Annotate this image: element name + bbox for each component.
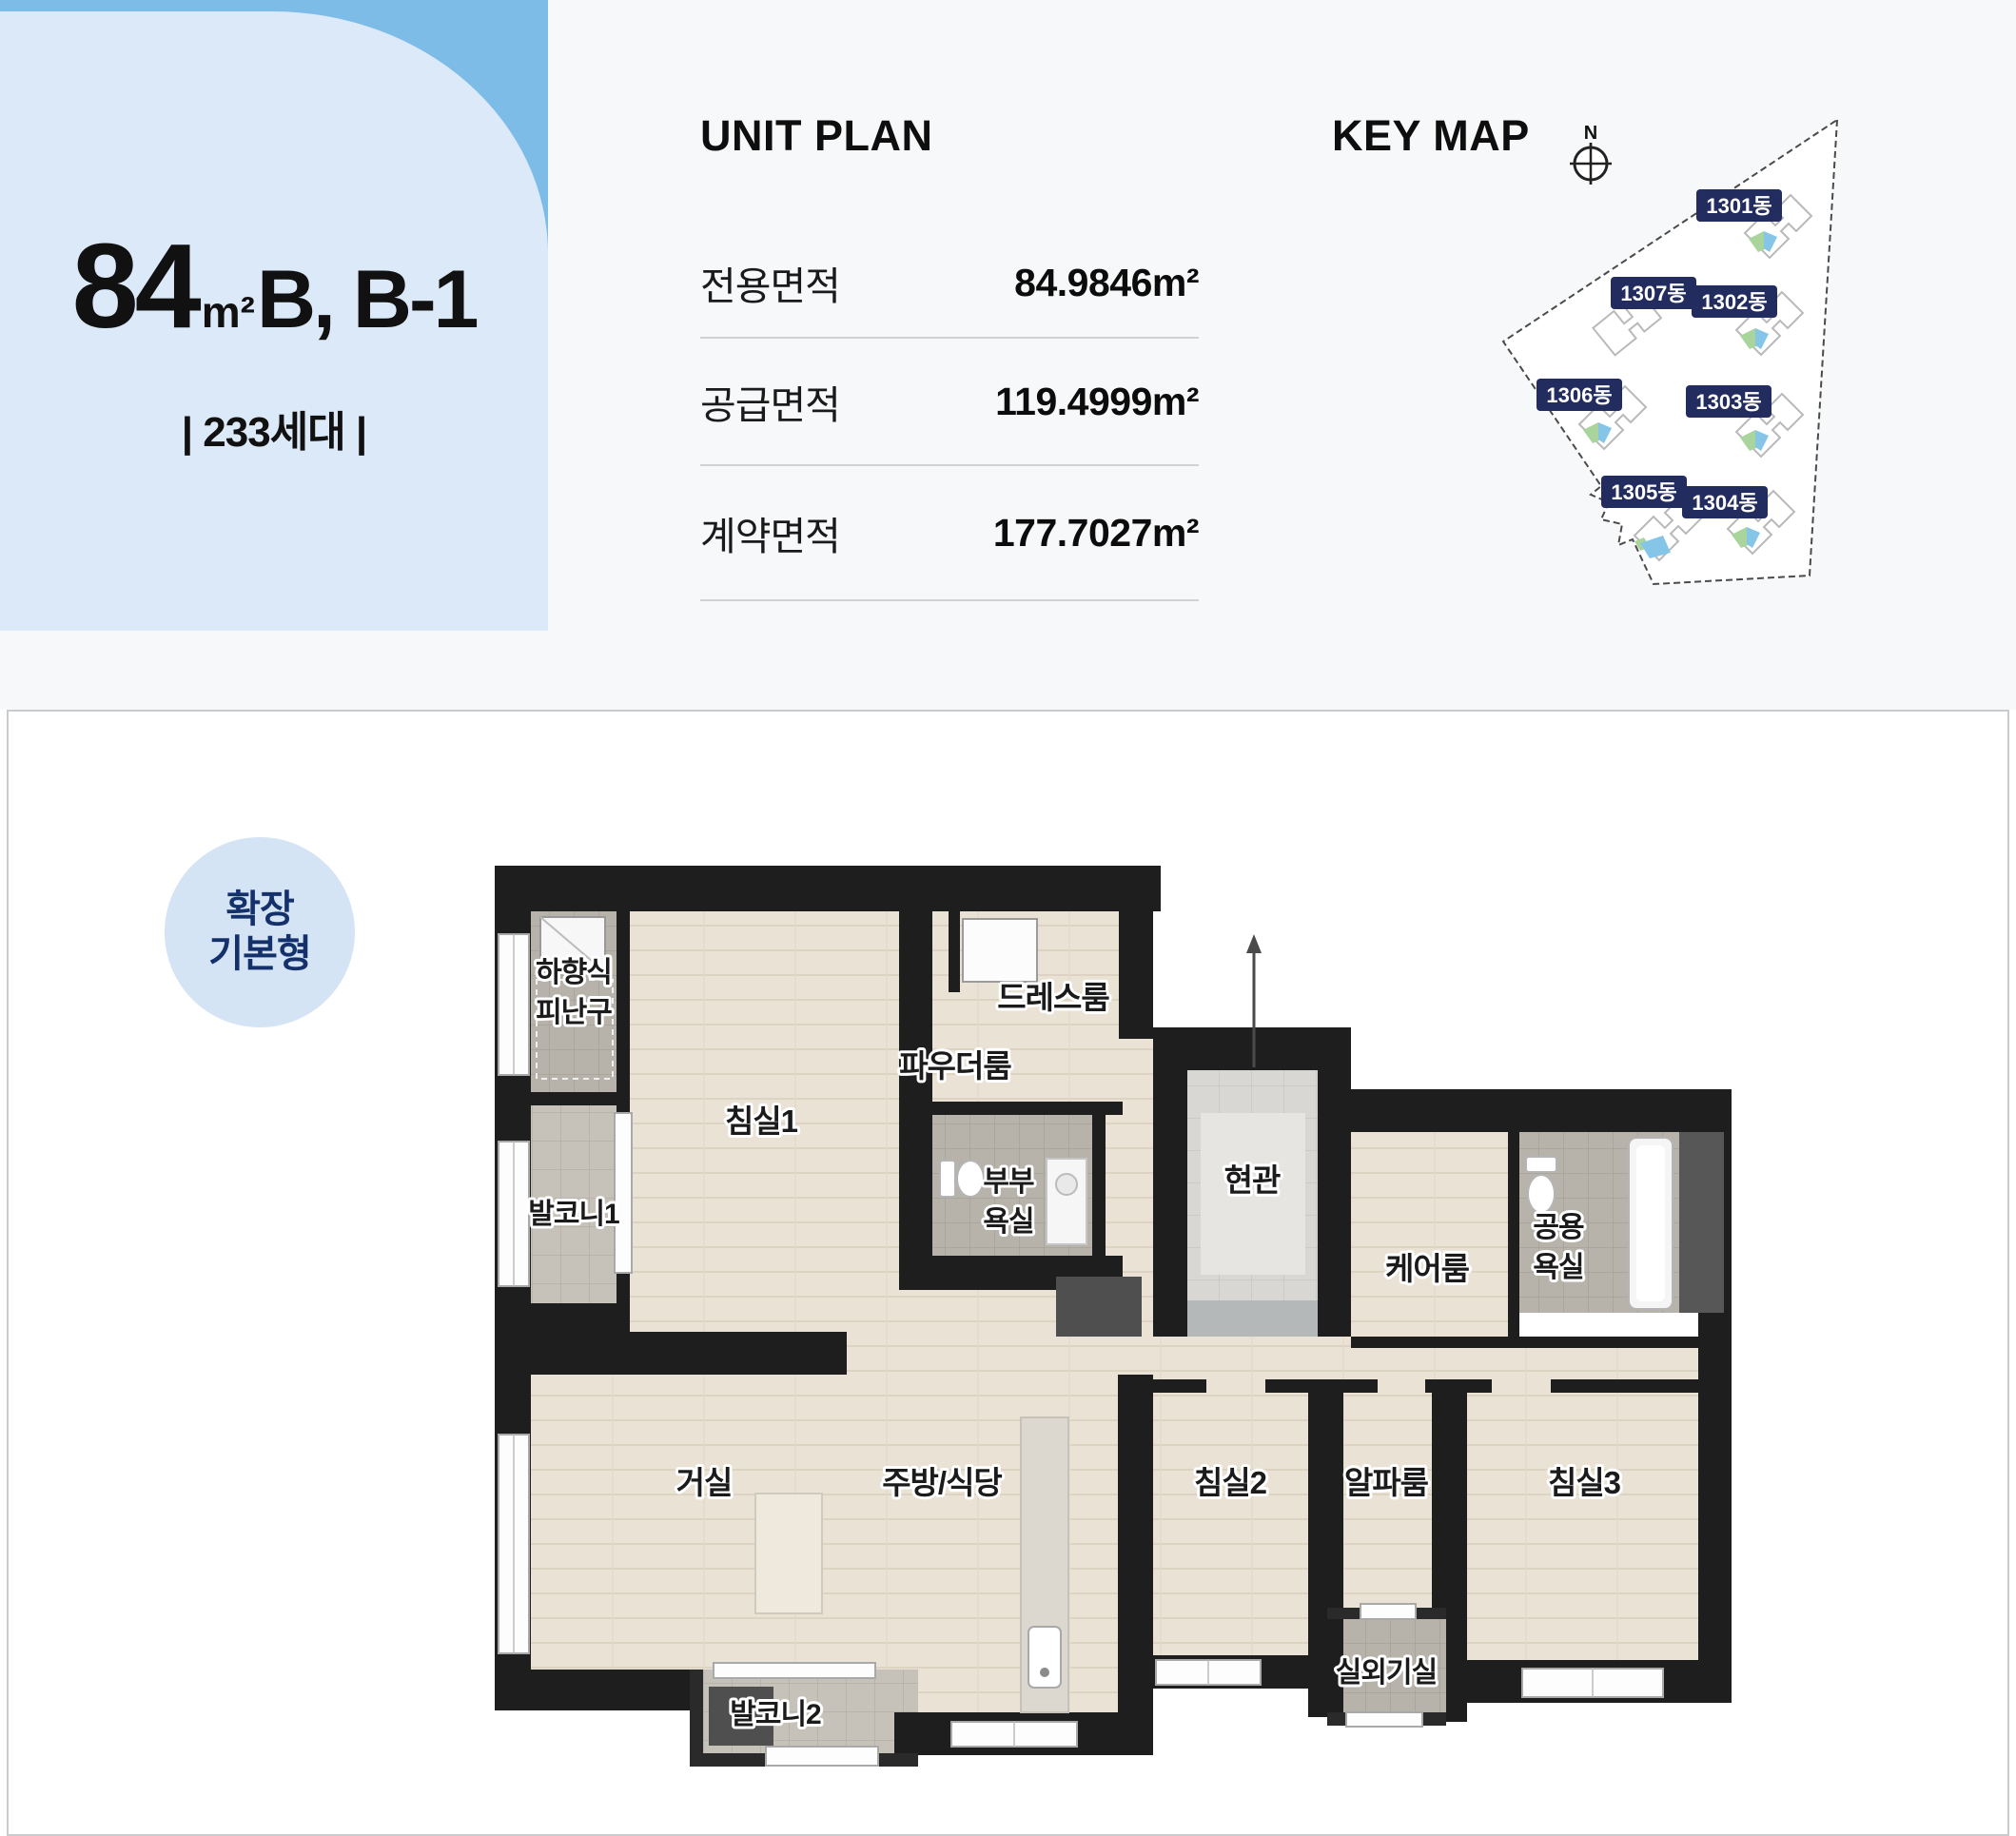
- svg-text:1304동: 1304동: [1692, 491, 1757, 515]
- top-band: 84m²B, B-1 | 233세대 | UNIT PLAN 전용면적 84.9…: [0, 0, 2016, 710]
- room-label-outdoorunit: 실외기실: [1336, 1657, 1437, 1689]
- variant-line2: 기본형: [208, 932, 310, 977]
- sink-icon: [1056, 1174, 1077, 1195]
- variant-line1: 확장: [225, 888, 294, 932]
- room-label-escape1: 하향식: [536, 957, 612, 988]
- area-number: 84: [72, 219, 198, 353]
- row-label: 공급면적: [700, 373, 840, 430]
- plan-variant-badge: 확장 기본형: [165, 837, 355, 1027]
- type-label: B, B-1: [257, 254, 476, 345]
- building-badge-1302: 1302동: [1692, 285, 1777, 318]
- row-value: 84.9846m²: [1014, 261, 1199, 305]
- room-label-alpha: 알파룸: [1344, 1465, 1429, 1500]
- room-label-balcony2: 발코니2: [730, 1699, 821, 1730]
- building-badge-1305: 1305동: [1601, 476, 1687, 508]
- key-map: N 1301동 1307동 1302동: [1484, 76, 1893, 615]
- room-label-commonbath2: 욕실: [1533, 1252, 1583, 1283]
- svg-text:1306동: 1306동: [1546, 383, 1612, 407]
- area-unit: m²: [202, 287, 255, 337]
- floor-entry-landing: [1118, 1337, 1351, 1379]
- svg-text:1301동: 1301동: [1706, 194, 1771, 218]
- building-badge-1307: 1307동: [1611, 277, 1696, 309]
- room-label-powder: 파우더룸: [899, 1048, 1011, 1084]
- entrance-step: [1187, 1300, 1318, 1337]
- floor-bedroom2: [1153, 1393, 1308, 1655]
- entrance-arrow-icon: [1246, 934, 1262, 953]
- toilet-icon: [1526, 1157, 1556, 1172]
- svg-text:1303동: 1303동: [1695, 390, 1761, 414]
- table-row: 계약면적 177.7027m²: [700, 466, 1199, 601]
- unit-type-title: 84m²B, B-1: [0, 217, 548, 355]
- sink-drain-icon: [1040, 1668, 1049, 1677]
- unit-plan-title: UNIT PLAN: [700, 111, 933, 161]
- room-label-living: 거실: [676, 1465, 733, 1500]
- compass-icon: N: [1570, 123, 1612, 185]
- room-label-bedroom2: 침실2: [1194, 1465, 1267, 1500]
- toilet-icon: [1528, 1175, 1555, 1213]
- kitchen-island: [755, 1494, 822, 1613]
- room-label-masterbath1: 부부: [983, 1166, 1034, 1198]
- floor-plan: 하향식 피난구 발코니1 침실1 파우더룸 드레스룸 부부 욕실 현관 케어룸 …: [476, 828, 1732, 1771]
- bathtub-icon: [1636, 1145, 1665, 1301]
- building-badge-1306: 1306동: [1536, 379, 1622, 411]
- unit-summary-card: 84m²B, B-1 | 233세대 |: [0, 0, 548, 631]
- room-label-kitchen: 주방/식당: [882, 1465, 1002, 1500]
- row-label: 전용면적: [700, 254, 840, 311]
- kitchen-sink-icon: [1028, 1627, 1061, 1688]
- building-badge-1301: 1301동: [1696, 189, 1782, 222]
- table-row: 공급면적 119.4999m²: [700, 339, 1199, 466]
- building-badge-1304: 1304동: [1682, 486, 1768, 518]
- svg-text:1307동: 1307동: [1620, 282, 1686, 305]
- floor-alpha-room: [1343, 1393, 1432, 1608]
- svg-text:1305동: 1305동: [1611, 480, 1676, 504]
- room-label-commonbath1: 공용: [1533, 1212, 1584, 1243]
- room-label-care: 케어룸: [1385, 1251, 1470, 1286]
- room-label-dress: 드레스룸: [997, 980, 1109, 1015]
- toilet-icon: [957, 1161, 984, 1197]
- floor-bedroom3: [1467, 1393, 1724, 1660]
- households-count: | 233세대 |: [0, 398, 548, 459]
- unit-plan-table: 전용면적 84.9846m² 공급면적 119.4999m² 계약면적 177.…: [700, 228, 1199, 601]
- room-label-balcony1: 발코니1: [528, 1199, 619, 1230]
- floor-kitchen: [899, 1375, 1118, 1712]
- room-label-entrance: 현관: [1224, 1162, 1281, 1198]
- row-label: 계약면적: [700, 504, 840, 561]
- floor-corridor-right: [1351, 1348, 1724, 1379]
- row-value: 177.7027m²: [993, 511, 1199, 556]
- row-value: 119.4999m²: [995, 380, 1199, 424]
- dress-room-closet: [963, 919, 1037, 982]
- table-row: 전용면적 84.9846m²: [700, 228, 1199, 339]
- svg-text:N: N: [1584, 123, 1597, 144]
- svg-text:1302동: 1302동: [1701, 290, 1767, 314]
- toilet-icon: [940, 1161, 955, 1197]
- vanity-icon: [1047, 1159, 1086, 1244]
- building-badge-1303: 1303동: [1686, 385, 1771, 418]
- room-label-bedroom1: 침실1: [725, 1104, 798, 1139]
- room-label-bedroom3: 침실3: [1548, 1465, 1621, 1500]
- room-label-masterbath2: 욕실: [983, 1206, 1033, 1238]
- room-label-escape2: 피난구: [536, 997, 612, 1028]
- floor-care-room: [1351, 1132, 1508, 1337]
